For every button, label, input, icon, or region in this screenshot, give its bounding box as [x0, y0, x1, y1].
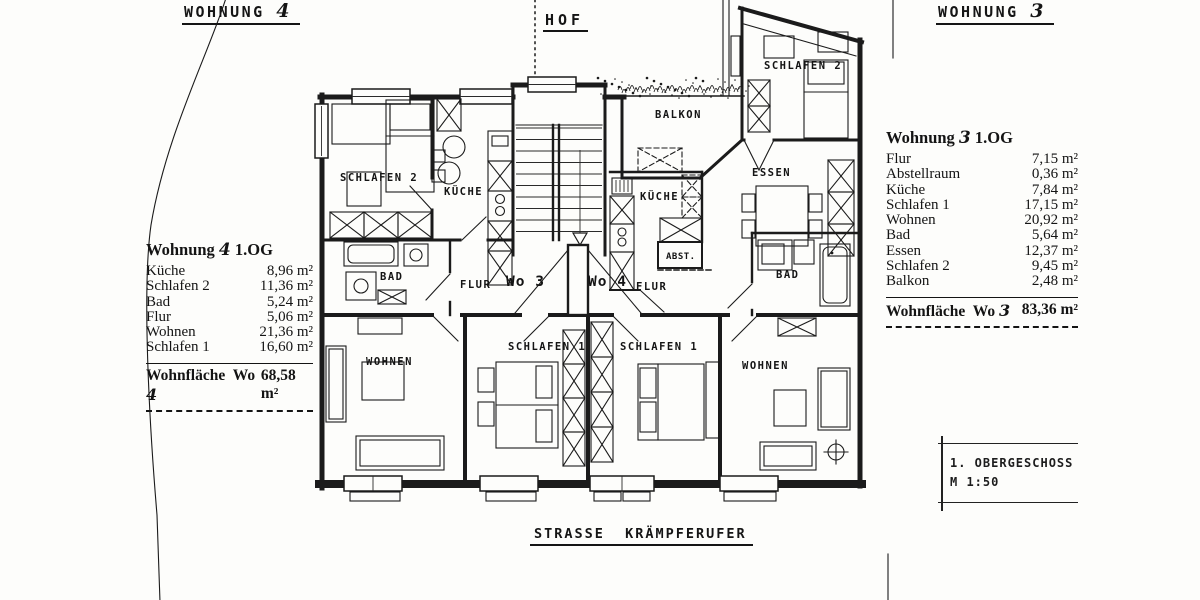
label-bad-right: BAD [776, 269, 799, 281]
total-label-num: 4 [146, 385, 157, 404]
label-schlafen1-left: SCHLAFEN 1 [508, 341, 586, 353]
area-table-wo3: Wohnung 3 1.OG Flur7,15 m² Abstellraum0,… [886, 128, 1078, 328]
row-value: 5,64 m² [1032, 228, 1078, 243]
row-value: 9,45 m² [1032, 259, 1078, 274]
wo4-title-prefix: Wohnung [146, 240, 215, 259]
row-label: Küche [886, 183, 925, 198]
table-row: Schlafen 211,36 m² [146, 279, 313, 294]
row-value: 7,15 m² [1032, 152, 1078, 167]
area-table-wo3-title: Wohnung 3 1.OG [886, 128, 1078, 148]
label-schlafen2-right: SCHLAFEN 2 [764, 60, 842, 72]
area-table-wo4: Wohnung 4 1.OG Küche8,96 m² Schlafen 211… [146, 240, 313, 412]
table-row: Schlafen 117,15 m² [886, 198, 1078, 213]
row-label: Schlafen 2 [146, 279, 210, 294]
table-separator [146, 363, 313, 364]
row-label: Schlafen 1 [146, 340, 210, 355]
label-kueche-right: KÜCHE [640, 189, 679, 203]
title-wohnung-4: WOHNUNG 4 [182, 0, 300, 25]
table-separator [886, 297, 1078, 298]
label-abst: ABST. [666, 252, 696, 262]
total-label-text: Wohnfläche Wo [146, 367, 255, 384]
table-row: Wohnen21,36 m² [146, 325, 313, 340]
label-flur-right: FLUR [636, 281, 667, 293]
title-wohnung-4-text: WOHNUNG [184, 3, 265, 21]
table-row: Schlafen 116,60 m² [146, 340, 313, 355]
table-row: Abstellraum0,36 m² [886, 167, 1078, 182]
label-wo4: Wo 4 [588, 274, 627, 290]
total-label-text: Wohnfläche Wo [886, 303, 995, 320]
label-schlafen1-right: SCHLAFEN 1 [620, 341, 698, 353]
table-row: Flur5,06 m² [146, 310, 313, 325]
table-row: Flur7,15 m² [886, 152, 1078, 167]
row-label: Abstellraum [886, 167, 960, 182]
row-label: Schlafen 1 [886, 198, 950, 213]
total-value: 68,58 m² [261, 367, 313, 405]
furniture-wohnen-right [760, 318, 850, 470]
row-value: 0,36 m² [1032, 167, 1078, 182]
table-row: Essen12,37 m² [886, 244, 1078, 259]
titleblock-scale: M 1:50 [938, 473, 1078, 492]
table-row: Küche8,96 m² [146, 264, 313, 279]
row-label: Küche [146, 264, 185, 279]
table-row: Bad5,64 m² [886, 228, 1078, 243]
titleblock: 1. OBERGESCHOSS M 1:50 [938, 443, 1078, 503]
total-value: 83,36 m² [1022, 301, 1078, 321]
label-bad-left: BAD [380, 271, 403, 283]
label-flur-left: FLUR [460, 279, 491, 291]
table-row: Balkon2,48 m² [886, 274, 1078, 289]
row-value: 5,06 m² [267, 310, 313, 325]
windows [315, 77, 778, 501]
row-value: 16,60 m² [259, 340, 313, 355]
title-wohnung-4-num: 4 [276, 0, 292, 22]
furniture-bad-right [758, 240, 850, 306]
survey-point-icon [824, 440, 848, 464]
row-value: 17,15 m² [1024, 198, 1078, 213]
label-essen: ESSEN [752, 167, 791, 179]
label-kueche-left: KÜCHE [444, 184, 483, 198]
row-label: Bad [886, 228, 910, 243]
title-wohnung-3-text: WOHNUNG [938, 3, 1019, 21]
table-row: Küche7,84 m² [886, 183, 1078, 198]
total-label-num: 3 [999, 301, 1010, 320]
table-row: Schlafen 29,45 m² [886, 259, 1078, 274]
furniture-schlafen2-left [330, 100, 434, 238]
wo4-title-num: 4 [219, 240, 231, 260]
row-label: Wohnen [886, 213, 936, 228]
wo4-title-suffix: 1.OG [235, 240, 273, 259]
row-label: Wohnen [146, 325, 196, 340]
titleblock-floor: 1. OBERGESCHOSS [938, 454, 1078, 473]
total-row: Wohnfläche Wo 383,36 m² [886, 301, 1078, 321]
table-dashed-rule [886, 326, 1078, 328]
row-label: Essen [886, 244, 921, 259]
furniture-schlafen2-right [731, 32, 848, 138]
row-value: 2,48 m² [1032, 274, 1078, 289]
table-dashed-rule [146, 410, 313, 412]
row-value: 8,96 m² [267, 264, 313, 279]
total-row: Wohnfläche Wo 468,58 m² [146, 367, 313, 405]
label-street: STRASSE KRÄMPFERUFER [530, 526, 753, 546]
title-wohnung-3: WOHNUNG 3 [936, 0, 1054, 25]
row-value: 21,36 m² [259, 325, 313, 340]
table-row: Wohnen20,92 m² [886, 213, 1078, 228]
label-schlafen2-left: SCHLAFEN 2 [340, 172, 418, 184]
label-wo3: Wo 3 [506, 274, 545, 290]
row-value: 20,92 m² [1024, 213, 1078, 228]
floorplan-sheet: BALKON SCHLAFEN 2 KÜCHE BAD FLUR Wo 3 Wo… [0, 0, 1200, 600]
row-value: 12,37 m² [1024, 244, 1078, 259]
label-hof: HOF [543, 11, 588, 32]
table-row: Bad5,24 m² [146, 295, 313, 310]
row-label: Flur [146, 310, 171, 325]
area-table-wo4-title: Wohnung 4 1.OG [146, 240, 313, 260]
row-label: Flur [886, 152, 911, 167]
label-wohnen-right: WOHNEN [742, 360, 789, 372]
wo3-title-num: 3 [959, 128, 971, 148]
label-wohnen-left: WOHNEN [366, 356, 413, 368]
row-value: 11,36 m² [260, 279, 313, 294]
furniture-wohnen-left [326, 318, 444, 470]
row-label: Balkon [886, 274, 929, 289]
wo3-title-suffix: 1.OG [975, 128, 1013, 147]
row-label: Bad [146, 295, 170, 310]
row-value: 5,24 m² [267, 295, 313, 310]
total-label: Wohnfläche Wo 3 [886, 301, 1010, 321]
total-label: Wohnfläche Wo 4 [146, 367, 261, 405]
label-balkon: BALKON [655, 109, 702, 121]
row-label: Schlafen 2 [886, 259, 950, 274]
title-wohnung-3-num: 3 [1030, 0, 1046, 22]
row-value: 7,84 m² [1032, 183, 1078, 198]
staircase [516, 125, 602, 245]
wo3-title-prefix: Wohnung [886, 128, 955, 147]
